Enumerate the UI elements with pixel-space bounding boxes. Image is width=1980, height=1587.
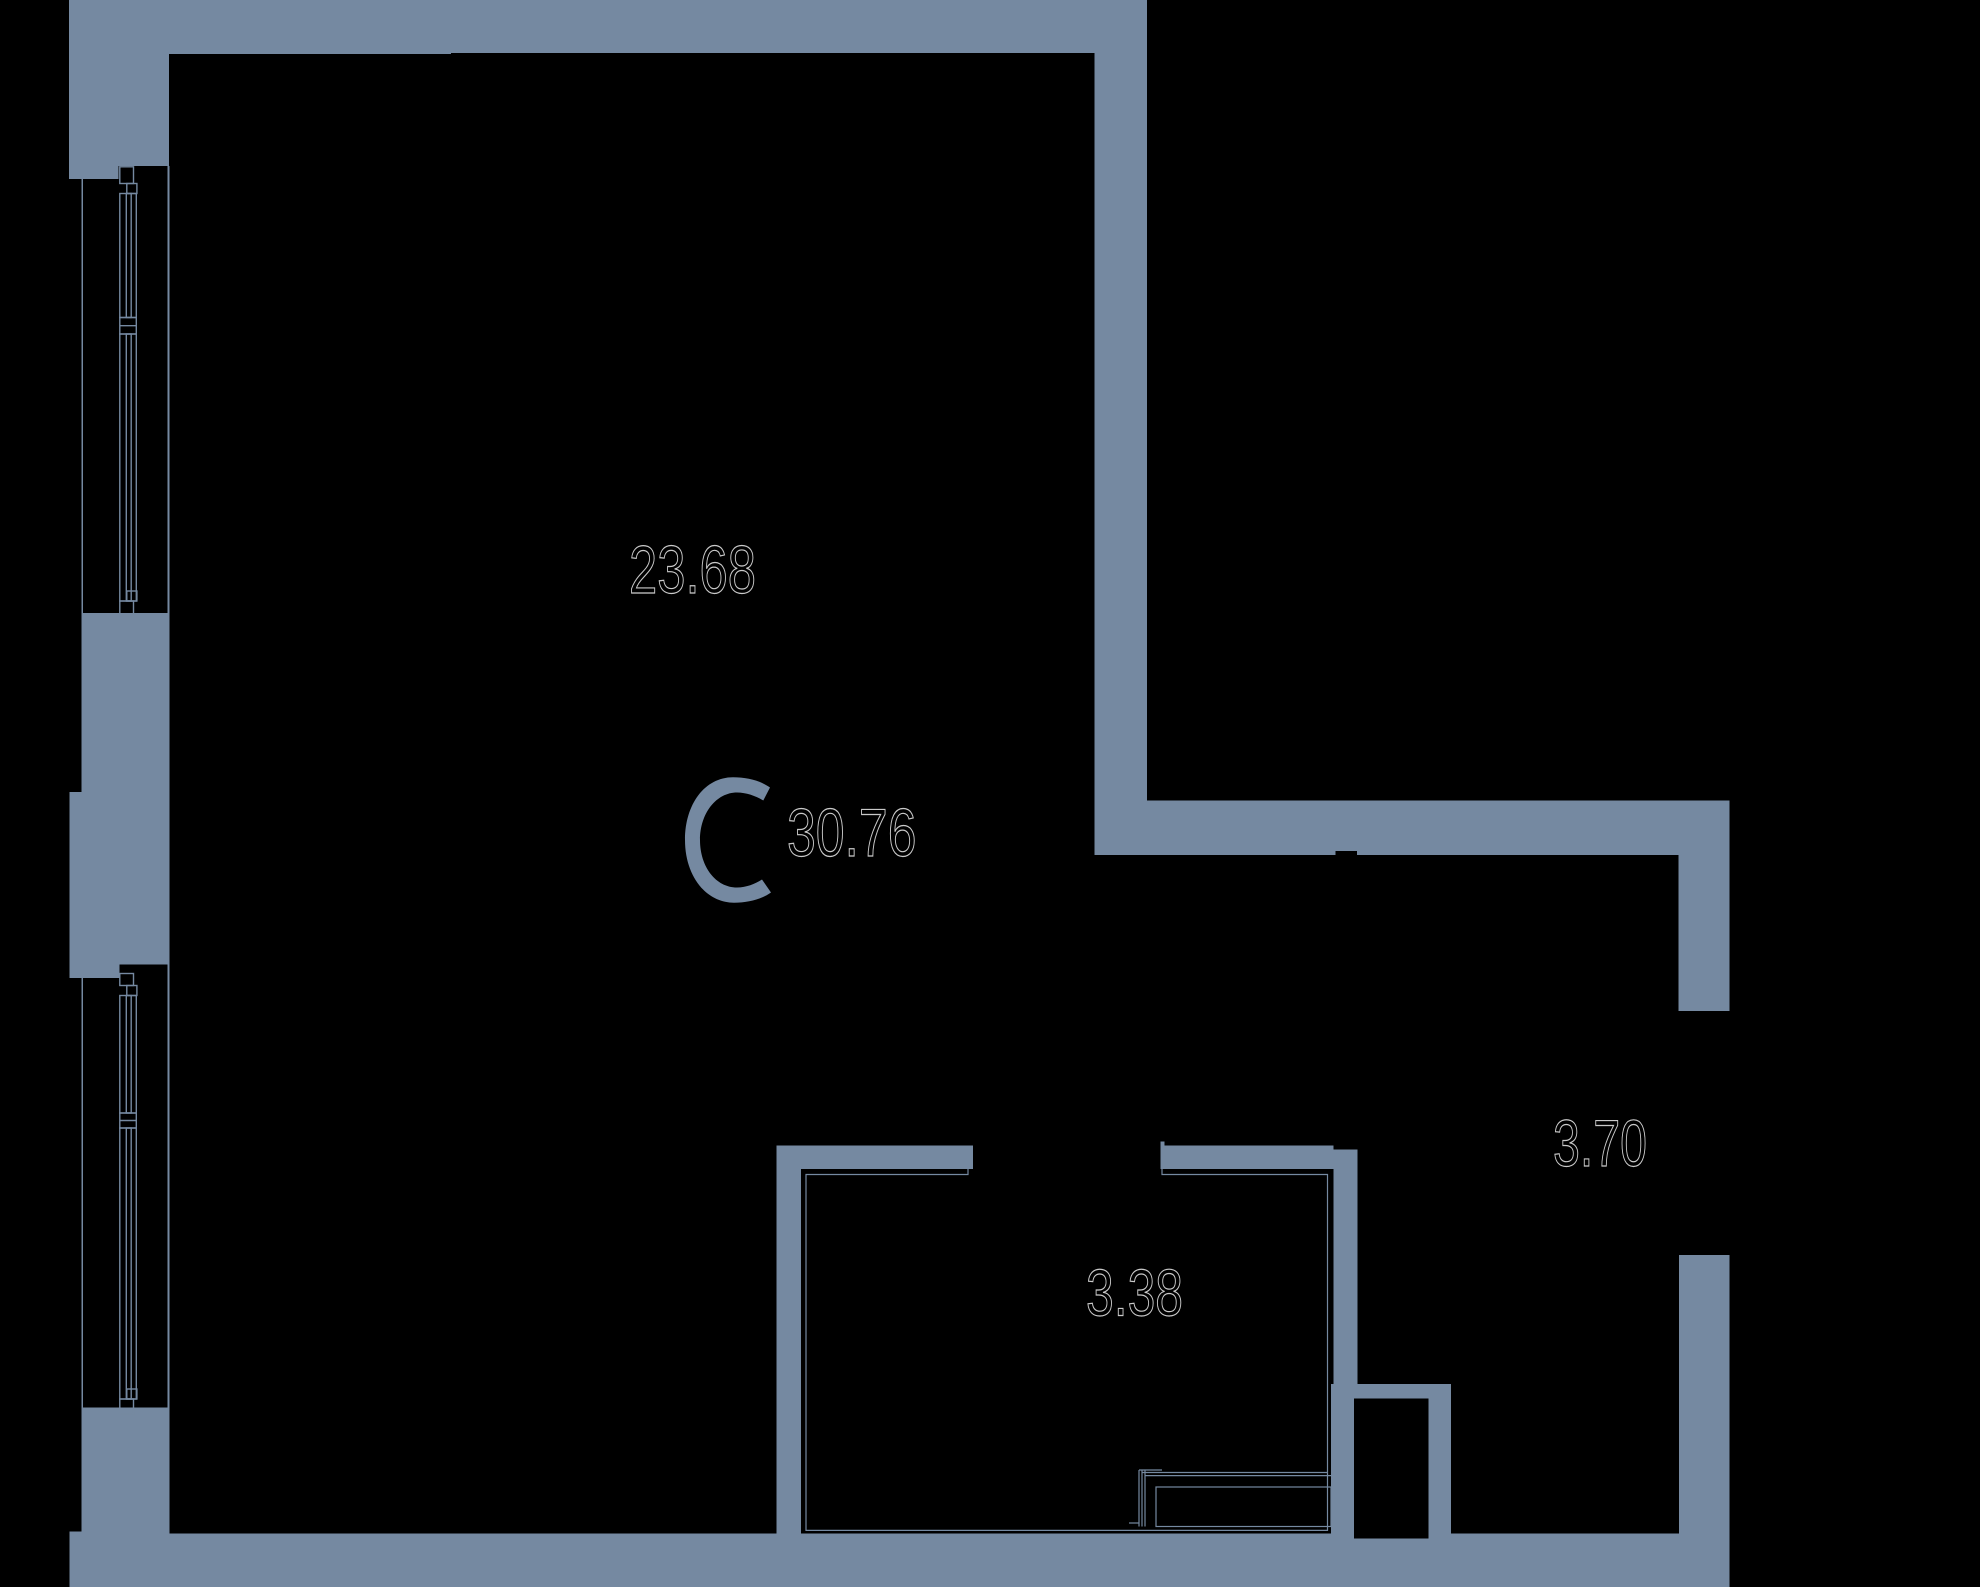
svg-text:3.38: 3.38: [1086, 1257, 1183, 1330]
svg-text:30.76: 30.76: [787, 796, 917, 871]
svg-text:23.68: 23.68: [629, 533, 756, 608]
svg-text:3.70: 3.70: [1553, 1106, 1647, 1180]
